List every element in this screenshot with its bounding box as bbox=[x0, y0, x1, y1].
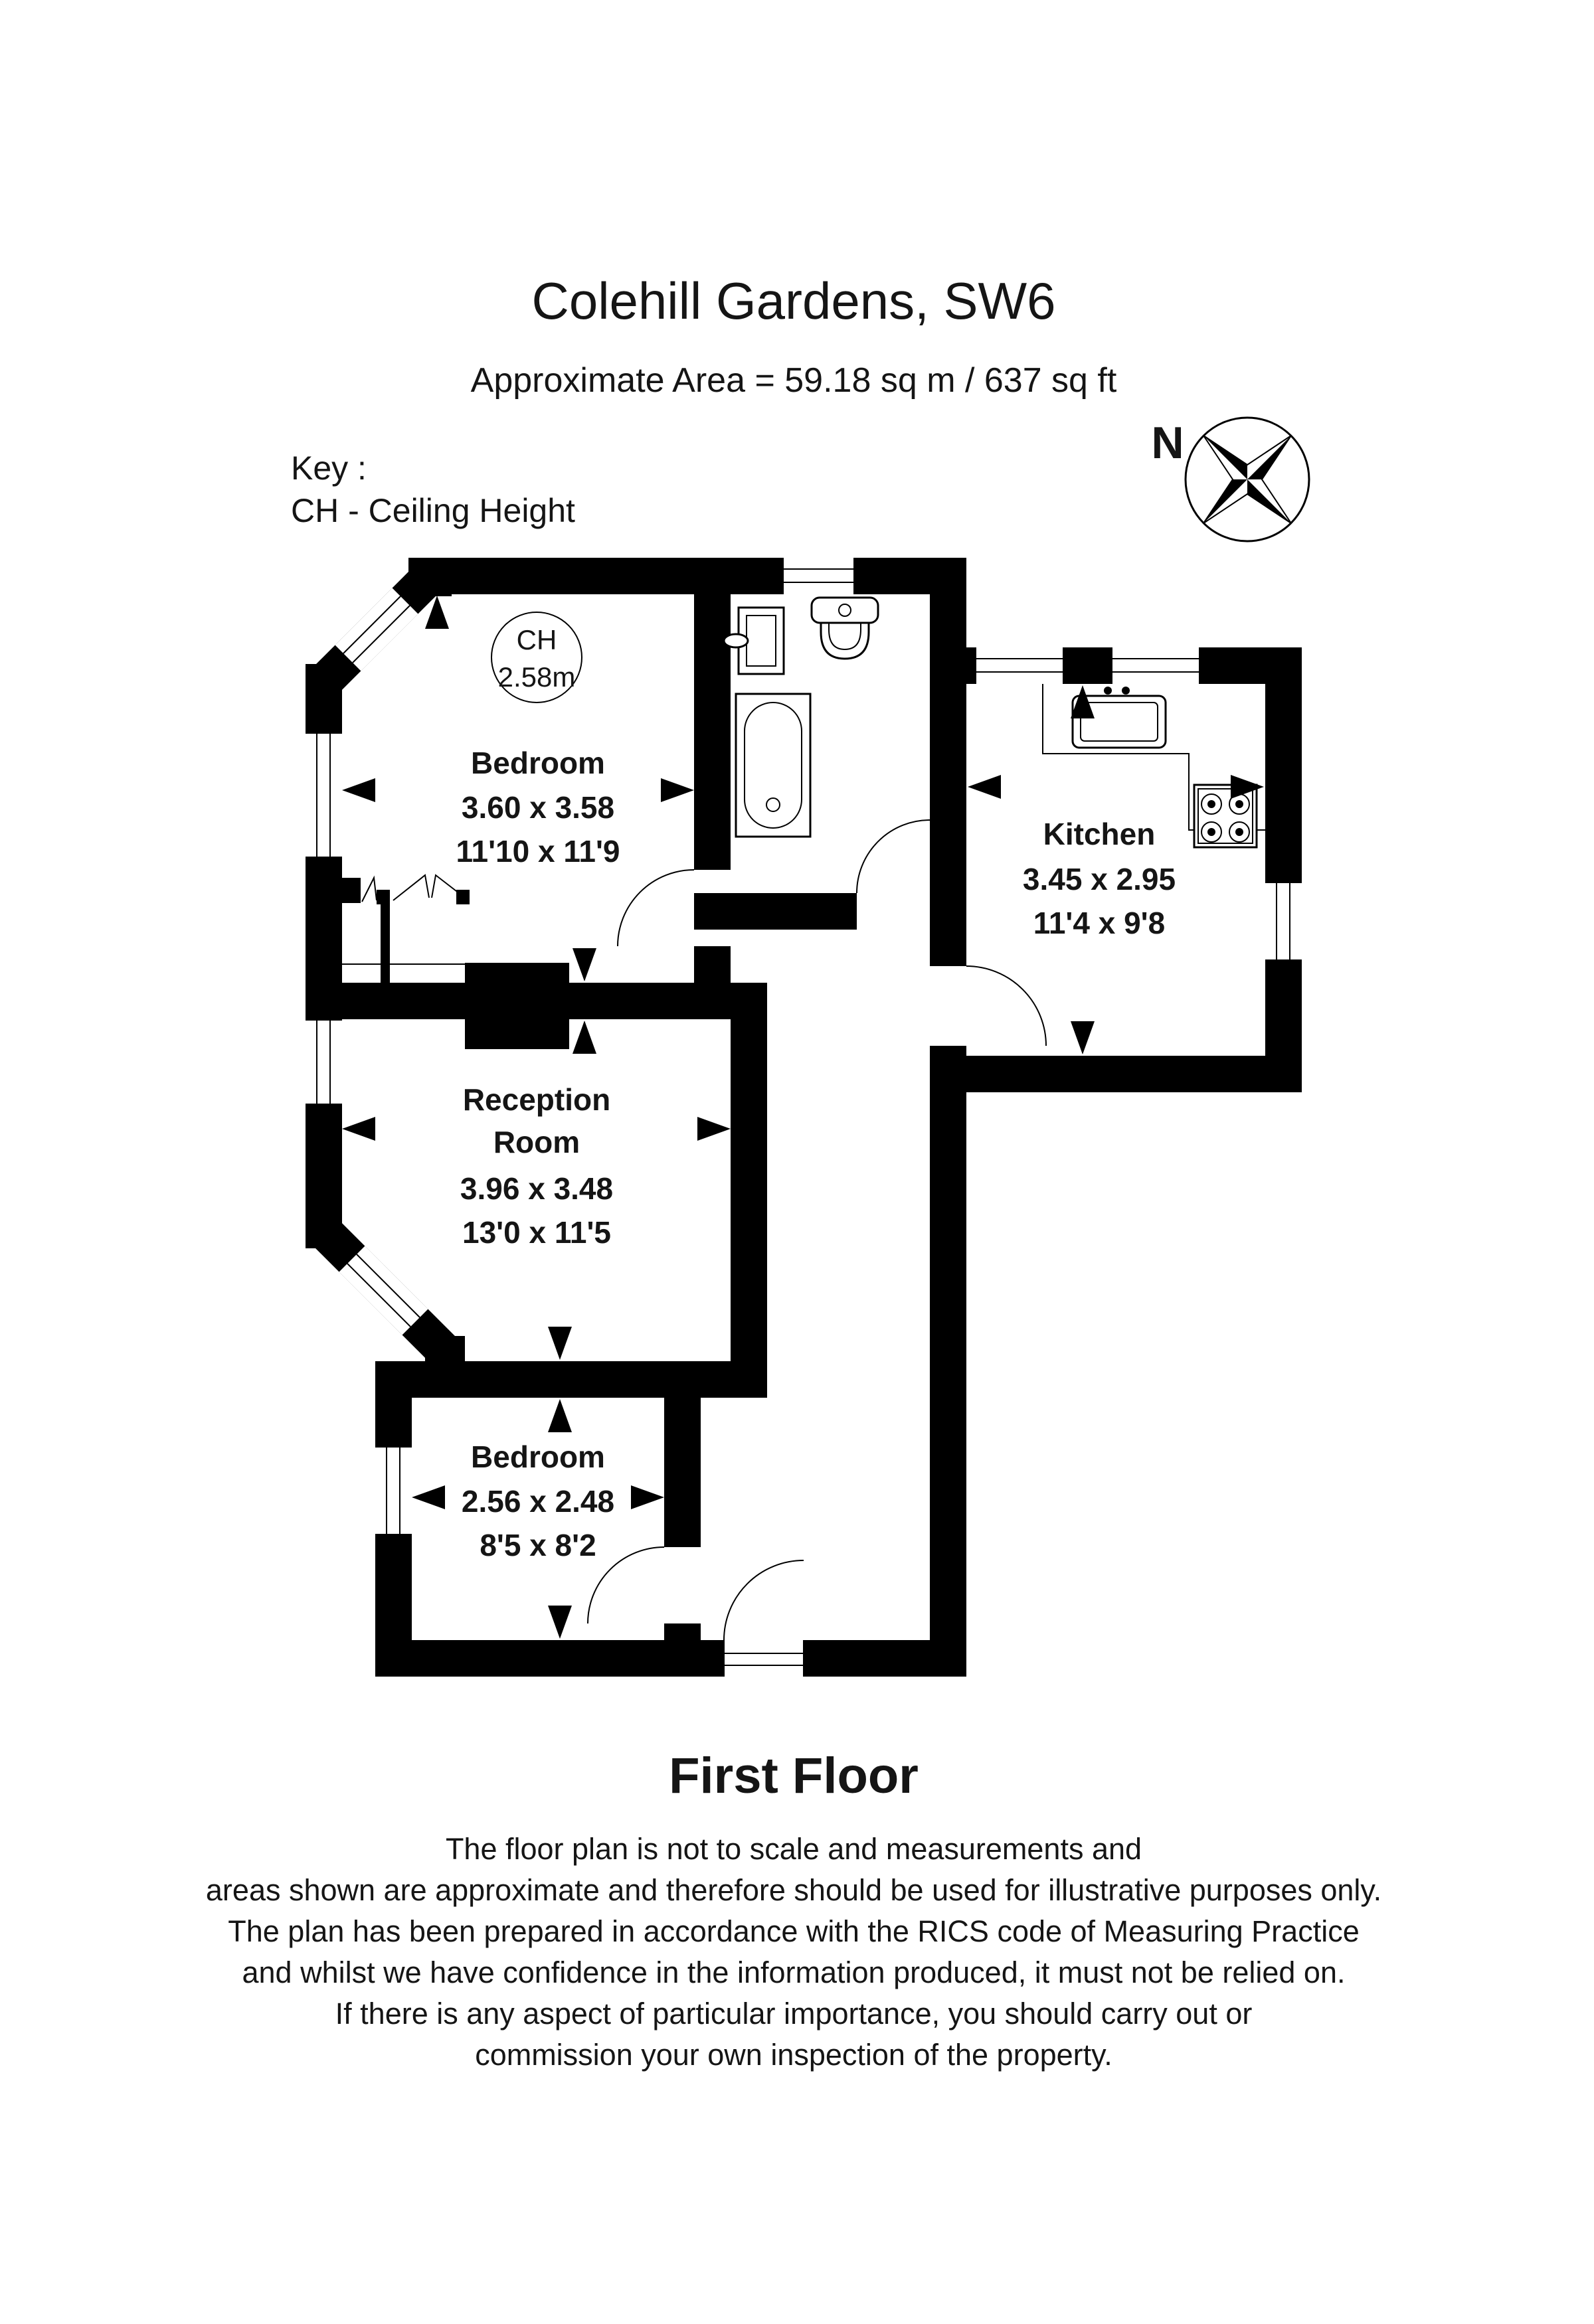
bathroom-fixtures bbox=[724, 598, 878, 837]
room-name: Bedroom bbox=[471, 746, 605, 780]
measure-arrow-down bbox=[548, 1327, 572, 1360]
measure-arrow-right bbox=[631, 1485, 664, 1509]
disclaimer-line: If there is any aspect of particular imp… bbox=[335, 1997, 1253, 2031]
disclaimer-line: and whilst we have confidence in the inf… bbox=[242, 1955, 1346, 1989]
disclaimer-line: The plan has been prepared in accordance… bbox=[228, 1914, 1359, 1948]
room-dim-metric: 2.56 x 2.48 bbox=[462, 1484, 614, 1519]
sink-icon bbox=[724, 608, 784, 674]
bathroom-door-arc bbox=[857, 820, 930, 893]
floorplan-page: Colehill Gardens, SW6 Approximate Area =… bbox=[0, 0, 1594, 2324]
bedroom-1-door-arc bbox=[618, 870, 694, 946]
disclaimer-line: areas shown are approximate and therefor… bbox=[206, 1873, 1381, 1907]
bedroom-2-label: Bedroom 2.56 x 2.48 8'5 x 8'2 bbox=[462, 1440, 614, 1562]
hob-icon bbox=[1194, 785, 1257, 847]
kitchen-window bbox=[1112, 647, 1199, 684]
measure-arrow-left bbox=[968, 775, 1001, 799]
measure-arrow-down bbox=[573, 948, 596, 981]
bay-window bbox=[348, 601, 405, 658]
kitchen-label: Kitchen 3.45 x 2.95 11'4 x 9'8 bbox=[1023, 817, 1176, 940]
doors bbox=[588, 820, 1046, 1640]
room-name: Kitchen bbox=[1043, 817, 1156, 851]
kitchen-side-window bbox=[1265, 883, 1302, 959]
key-ceiling-height: CH - Ceiling Height bbox=[291, 492, 575, 529]
approximate-area: Approximate Area = 59.18 sq m / 637 sq f… bbox=[471, 361, 1117, 400]
measure-arrow-up bbox=[548, 1399, 572, 1432]
room-dim-imperial: 8'5 x 8'2 bbox=[480, 1528, 596, 1562]
page-title: Colehill Gardens, SW6 bbox=[532, 272, 1056, 330]
reception-room-label: Reception Room 3.96 x 3.48 13'0 x 11'5 bbox=[460, 1082, 613, 1250]
bedroom-1-window bbox=[306, 734, 342, 857]
compass-north-label: N bbox=[1151, 418, 1184, 468]
room-dim-imperial: 13'0 x 11'5 bbox=[462, 1215, 611, 1250]
room-dim-imperial: 11'4 x 9'8 bbox=[1033, 906, 1165, 940]
kitchen-window bbox=[976, 647, 1063, 684]
bedroom-1-label: CH 2.58m Bedroom 3.60 x 3.58 11'10 x 11'… bbox=[456, 612, 620, 869]
entrance-door-arc bbox=[724, 1560, 804, 1640]
measure-arrow-up bbox=[573, 1021, 596, 1054]
floorplan-canvas: Colehill Gardens, SW6 Approximate Area =… bbox=[0, 0, 1594, 2324]
measure-arrow-down bbox=[1071, 1021, 1095, 1054]
ch-label: CH bbox=[517, 624, 557, 655]
bathtub-icon bbox=[736, 694, 810, 837]
bay-window bbox=[352, 1259, 415, 1322]
bedroom-2-window bbox=[375, 1448, 412, 1534]
disclaimer: The floor plan is not to scale and measu… bbox=[206, 1832, 1381, 2072]
disclaimer-line: The floor plan is not to scale and measu… bbox=[446, 1832, 1142, 1866]
kitchen-door-arc bbox=[966, 966, 1046, 1046]
measure-arrow-right bbox=[697, 1117, 731, 1141]
bedroom-2-door-arc bbox=[588, 1547, 664, 1623]
measure-arrow-left bbox=[412, 1485, 445, 1509]
room-dim-metric: 3.45 x 2.95 bbox=[1023, 862, 1176, 896]
ch-value: 2.58m bbox=[498, 661, 576, 693]
measure-arrow-left bbox=[342, 1117, 375, 1141]
room-dim-imperial: 11'10 x 11'9 bbox=[456, 834, 620, 869]
room-dim-metric: 3.60 x 3.58 bbox=[462, 790, 614, 825]
compass-star-shade bbox=[1203, 479, 1247, 523]
measure-arrow-down bbox=[548, 1606, 572, 1639]
compass-star-shade bbox=[1247, 436, 1291, 479]
cupboards bbox=[342, 875, 470, 983]
floor-label: First Floor bbox=[669, 1748, 919, 1804]
disclaimer-line: commission your own inspection of the pr… bbox=[475, 2038, 1112, 2072]
measure-arrow-right bbox=[661, 778, 694, 802]
room-name-line1: Reception bbox=[463, 1082, 610, 1117]
room-dim-metric: 3.96 x 3.48 bbox=[460, 1171, 613, 1206]
toilet-icon bbox=[812, 598, 878, 659]
room-name: Bedroom bbox=[471, 1440, 605, 1474]
measure-arrow-left bbox=[342, 778, 375, 802]
reception-window bbox=[306, 1021, 342, 1104]
bathroom-window bbox=[784, 558, 853, 594]
chimney-breast bbox=[465, 963, 569, 1049]
compass-star-shade bbox=[1203, 436, 1247, 479]
entrance-threshold bbox=[724, 1640, 804, 1677]
room-name-line2: Room bbox=[493, 1125, 580, 1159]
compass-star-shade bbox=[1247, 479, 1291, 523]
key-label: Key : bbox=[291, 450, 367, 487]
compass-icon: N bbox=[1151, 418, 1309, 541]
